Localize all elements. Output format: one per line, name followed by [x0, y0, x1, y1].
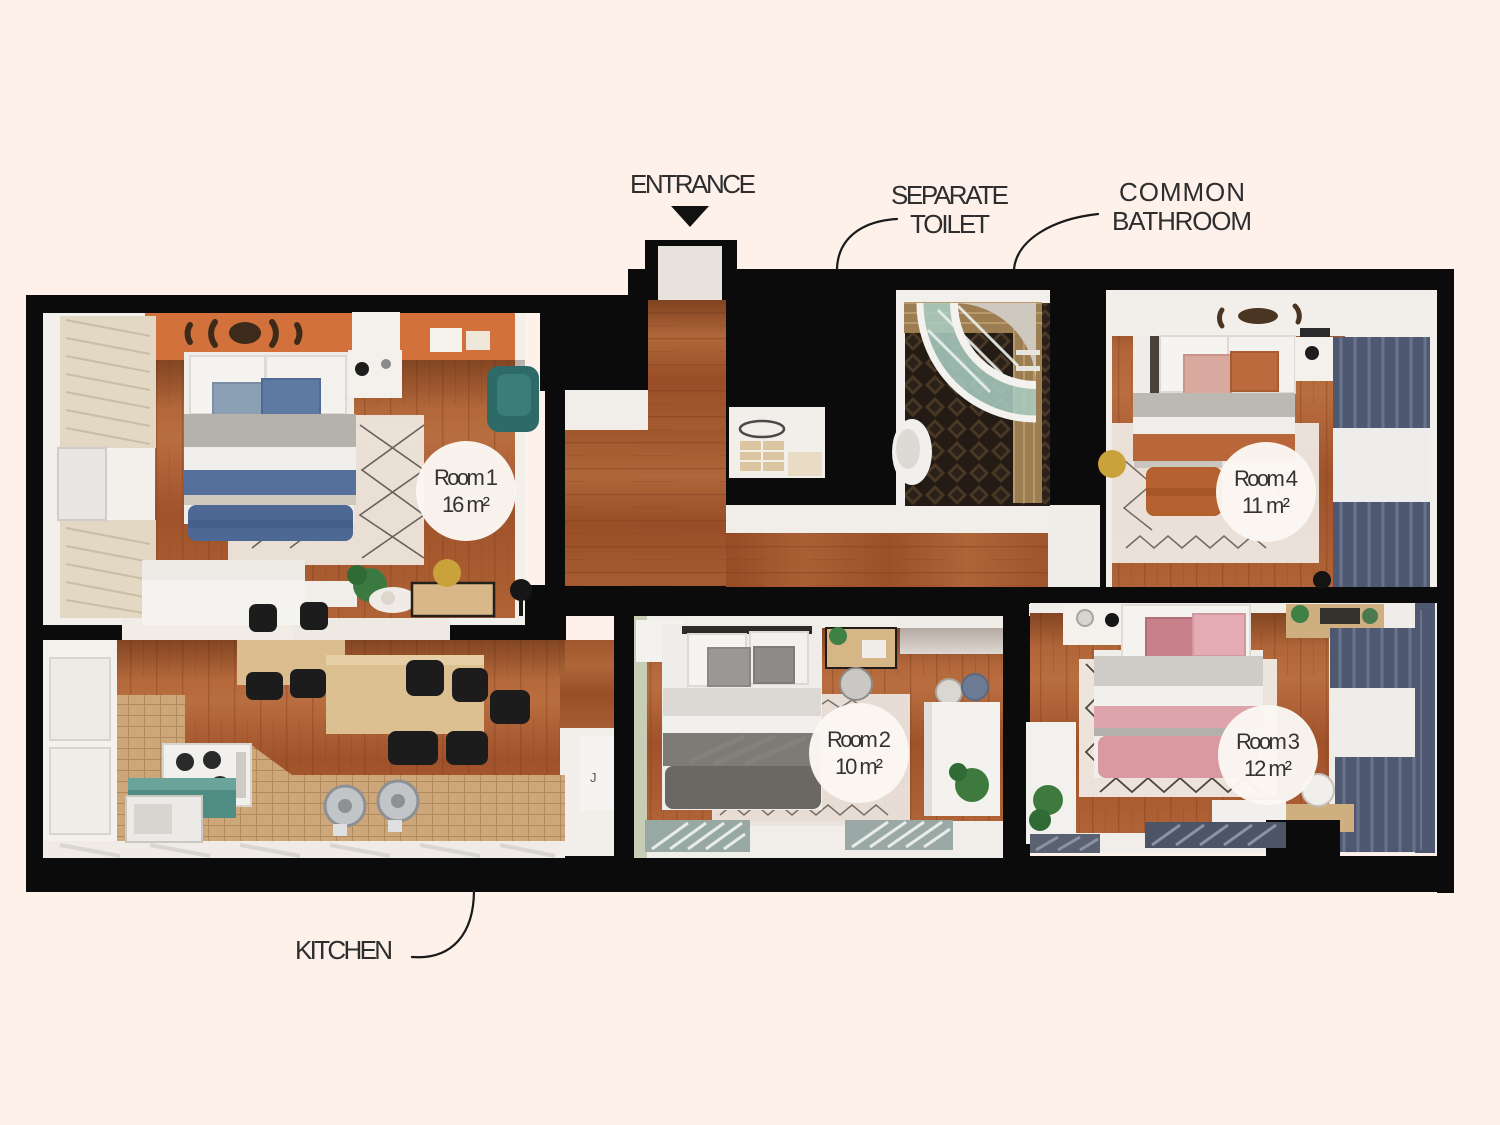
svg-text:J: J: [590, 770, 597, 785]
svg-text:11 m²: 11 m²: [1242, 493, 1290, 518]
svg-text:16 m²: 16 m²: [442, 492, 490, 517]
svg-text:Room 3: Room 3: [1236, 729, 1300, 754]
svg-text:ENTRANCE: ENTRANCE: [630, 169, 756, 199]
svg-text:Room 4: Room 4: [1234, 466, 1298, 491]
svg-text:SEPARATE: SEPARATE: [891, 180, 1009, 210]
svg-text:10 m²: 10 m²: [835, 754, 883, 779]
svg-text:TOILET: TOILET: [910, 209, 990, 239]
svg-text:Room 2: Room 2: [827, 727, 891, 752]
svg-text:12 m²: 12 m²: [1244, 756, 1292, 781]
svg-text:KITCHEN: KITCHEN: [295, 935, 393, 965]
svg-text:BATHROOM: BATHROOM: [1112, 206, 1252, 236]
svg-text:Room 1: Room 1: [434, 465, 498, 490]
svg-text:COMMON: COMMON: [1119, 177, 1245, 207]
